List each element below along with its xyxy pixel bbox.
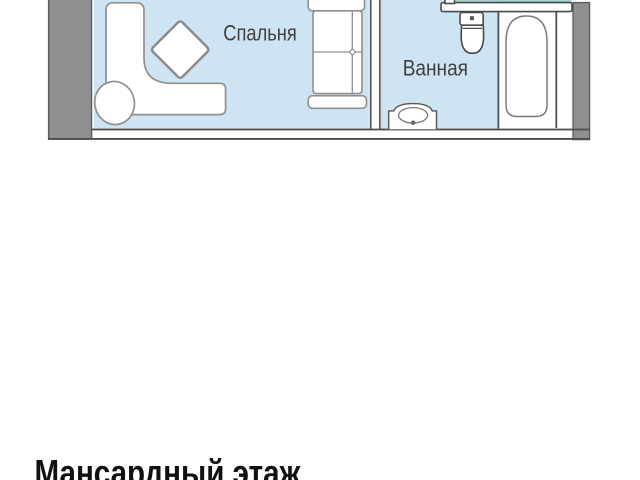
svg-text:Мансардный этаж: Мансардный этаж: [35, 452, 301, 480]
svg-text:Ванная: Ванная: [403, 55, 468, 80]
svg-text:Спальня: Спальня: [223, 21, 296, 46]
